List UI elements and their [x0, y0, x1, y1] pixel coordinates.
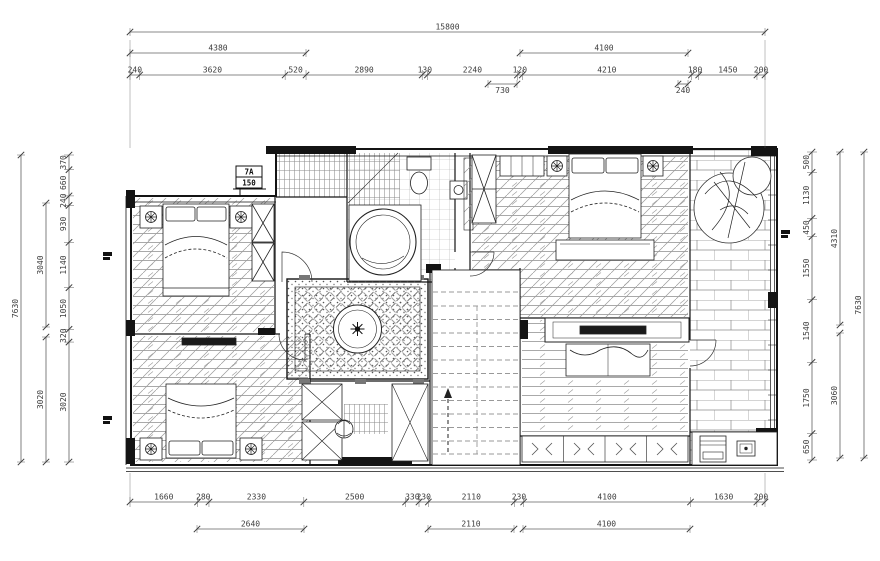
dim-label: 660 — [59, 175, 68, 190]
dim-label: 4310 — [830, 229, 839, 248]
lamp-icon — [648, 161, 659, 172]
lamp-icon — [146, 444, 157, 455]
bed-master — [556, 154, 654, 260]
bed-top-left — [163, 204, 229, 296]
courtyard — [287, 275, 428, 384]
floorplan-drawing: 7A 150 158004380410024036205202890130224… — [0, 0, 880, 561]
dim-label: 1540 — [802, 321, 811, 340]
dim-label: 3620 — [203, 66, 222, 75]
dim-label: 3020 — [59, 392, 68, 411]
dim-label: 1050 — [59, 299, 68, 318]
dim-label: 2890 — [354, 66, 373, 75]
lamp-icon — [236, 212, 247, 223]
lamp-icon — [146, 212, 157, 223]
dim-label: 730 — [495, 86, 510, 95]
dim-label: 2330 — [247, 493, 266, 502]
level-marker: 7A 150 — [233, 166, 266, 197]
dim-label: 240 — [59, 193, 68, 208]
dim-label: 1630 — [714, 493, 733, 502]
dim-label: 1140 — [59, 255, 68, 274]
tv-unit — [182, 338, 236, 345]
dim-label: 2110 — [462, 493, 481, 502]
dim-label: 120 — [513, 66, 528, 75]
wardrobe-row-right — [522, 436, 688, 462]
dim-label: 2640 — [241, 520, 260, 529]
dim-label: 520 — [288, 66, 303, 75]
dim-label: 7630 — [11, 299, 20, 318]
dim-label: 2240 — [463, 66, 482, 75]
staircase — [432, 270, 520, 465]
floor-shower — [348, 153, 400, 205]
bottom-sill — [126, 468, 784, 472]
lamp-icon — [552, 161, 563, 172]
media-console — [545, 318, 689, 342]
dim-label: 15800 — [435, 23, 459, 32]
small-plant-icon — [335, 420, 353, 438]
dim-label: 240 — [128, 66, 143, 75]
dim-label: 200 — [754, 493, 769, 502]
dim-label: 500 — [802, 155, 811, 170]
dim-label: 1550 — [802, 258, 811, 277]
dim-label: 2500 — [345, 493, 364, 502]
dim-label: 3060 — [830, 386, 839, 405]
appliance-niche — [692, 432, 777, 465]
lamp-icon — [246, 444, 257, 455]
dim-label: 1750 — [802, 388, 811, 407]
dim-label: 1130 — [802, 186, 811, 205]
tv-icon — [580, 326, 646, 334]
dim-label: 230 — [416, 493, 431, 502]
bathtub — [349, 205, 421, 281]
floor-closet-strip — [277, 153, 347, 197]
marker-text-1: 7A — [244, 168, 254, 177]
dim-label: 240 — [676, 86, 691, 95]
dim-label: 4380 — [208, 44, 227, 53]
dim-label: 130 — [418, 66, 433, 75]
dim-label: 4100 — [597, 520, 616, 529]
dim-label: 230 — [512, 493, 527, 502]
dim-label: 370 — [59, 155, 68, 170]
bed-right — [566, 344, 650, 376]
marker-text-2: 150 — [242, 179, 256, 188]
dim-label: 7630 — [854, 295, 863, 314]
dim-label: 3020 — [36, 390, 45, 409]
dim-label: 1660 — [154, 493, 173, 502]
dim-label: 2110 — [461, 520, 480, 529]
bed-bottom-left — [166, 384, 236, 458]
dim-label: 450 — [802, 220, 811, 235]
dim-label: 280 — [196, 493, 211, 502]
dim-label: 4100 — [594, 44, 613, 53]
dim-label: 1450 — [718, 66, 737, 75]
dim-label: 4210 — [597, 66, 616, 75]
dim-label: 4100 — [597, 493, 616, 502]
dim-label: 320 — [59, 328, 68, 343]
dim-label: 650 — [802, 439, 811, 454]
dim-label: 930 — [59, 216, 68, 231]
washer — [700, 436, 726, 462]
dim-label: 3040 — [36, 255, 45, 274]
